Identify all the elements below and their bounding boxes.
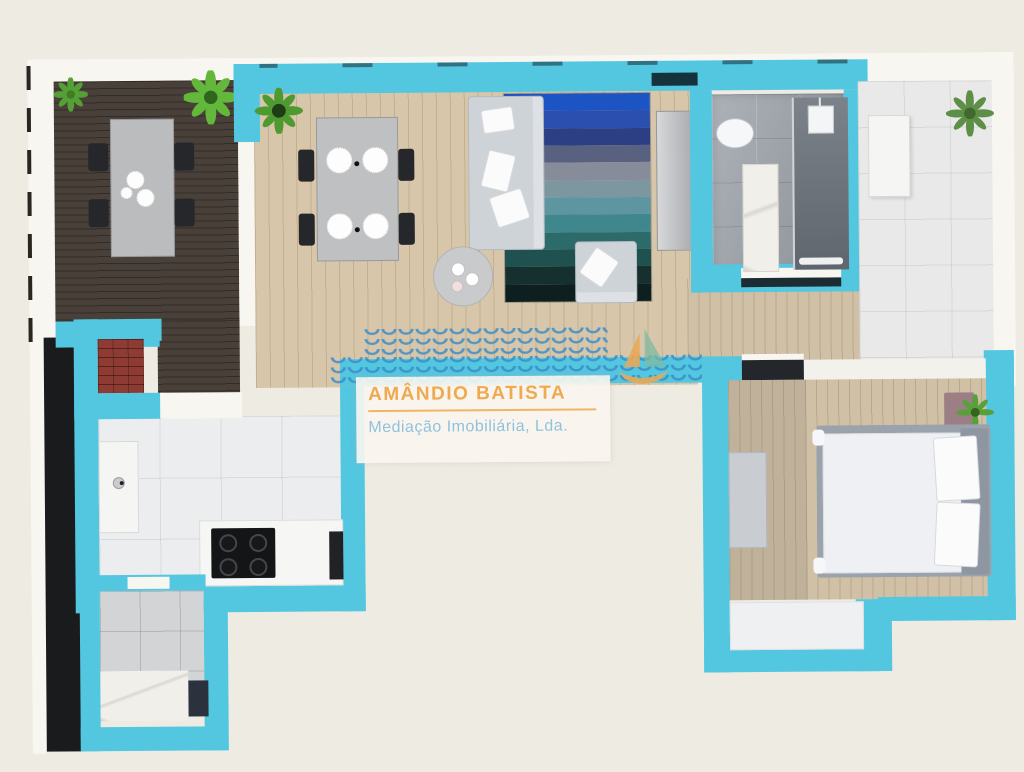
laundry-left-wall [79,575,100,751]
shower-hose [819,98,821,108]
bedroom-dresser [729,452,768,548]
plant-icon [54,77,88,111]
terrace-plate [120,187,132,199]
terrace-chair [89,199,109,227]
coffee-table [433,246,493,306]
terrace-chair [174,142,194,170]
cooktop-burner [219,558,237,576]
bed-foot-knob [813,558,825,574]
shower-head [808,105,834,133]
kitchen-top-wall [74,393,164,420]
cup [465,272,479,286]
laundry-marble-floor [100,671,188,722]
laundry-door [188,680,208,716]
floor-plan-render: AMÂNDIO BATISTA Mediação Imobiliária, Ld… [0,0,1024,768]
plant-icon [254,88,304,134]
cooktop-burner [249,558,267,576]
watermark-card: AMÂNDIO BATISTA Mediação Imobiliária, Ld… [356,375,611,463]
bed-foot-knob [812,430,824,446]
terrace-chair [175,198,195,226]
terrace-plate [126,171,144,189]
watermark-title: AMÂNDIO BATISTA [368,383,566,407]
sink-drain [120,481,124,485]
cooktop-burner [249,534,267,552]
watermark-subtitle: Mediação Imobiliária, Lda. [368,418,568,438]
laundry-floor [100,590,205,683]
plant-icon [184,70,238,124]
place-setting [362,147,388,173]
terrace-dining-table [110,119,175,257]
bathroom-left-wall [690,90,714,292]
shower-mat [799,257,843,264]
watermark-rule [368,408,596,412]
place-setting [326,147,352,173]
window-slot [652,73,698,86]
kitchen-appliance-slot [329,531,343,579]
dining-table [316,117,399,262]
sailboat-logo-icon [610,325,675,390]
bedroom-left-wall [702,380,730,672]
laundry-threshold [128,577,170,589]
bedroom-door-slot [742,360,804,380]
bedroom-mat [730,601,864,650]
table-decor-dot [355,227,360,232]
apartment-plan: AMÂNDIO BATISTA Mediação Imobiliária, Ld… [0,0,1024,772]
dining-chair [298,150,314,182]
cooktop-burner [219,534,237,552]
terrace-chair [88,143,108,171]
terrace-plate [136,189,154,207]
cup [451,262,465,276]
bathroom-vanity [742,164,779,272]
sofa-pillow [480,106,515,134]
place-setting [363,213,389,239]
watermark-waves [364,327,608,359]
balcony-bench [868,115,911,197]
plant-icon [946,90,994,136]
entry-hall-deck-floor [157,320,240,395]
bed-pillow [933,435,981,502]
dining-chair [399,213,415,245]
table-decor-dot [354,161,359,166]
dining-chair [398,149,414,181]
bathroom-door-slot [741,277,841,287]
toilet [716,118,754,148]
kitchen-entry-landing [160,392,242,419]
laundry-right-wall [204,600,229,750]
bed-pillow [934,502,981,568]
place-setting [327,213,353,239]
cup [451,280,463,292]
dining-chair [299,214,315,246]
brick-hearth [98,339,144,393]
